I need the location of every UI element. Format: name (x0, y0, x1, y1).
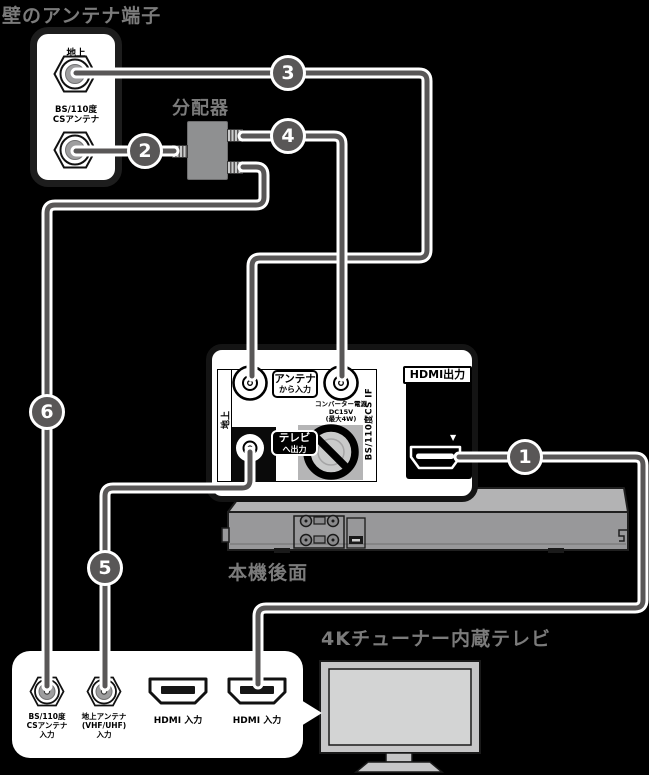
splitter-input-nub (172, 145, 188, 158)
antenna-in-terrestrial-connector-icon (230, 363, 270, 403)
coax-terminal-icon (53, 55, 97, 93)
bscs-if-label: BS/110度CS IF (361, 374, 377, 475)
tv-terrestrial-input-connector-icon (86, 676, 122, 707)
panel-pointer (301, 700, 322, 726)
tv-hdmi-input-port-icon (226, 676, 288, 706)
splitter-body (187, 121, 228, 180)
splitter-output-nub (227, 129, 243, 142)
tv-illustration (318, 658, 486, 775)
step-badge-3: 3 (270, 55, 306, 91)
device-rear-title: 本機後面 (228, 558, 308, 585)
hdmi-out-port-icon (408, 445, 464, 471)
tv-hdmi-input-port-icon (147, 676, 209, 706)
tv-out-label: テレビ へ出力 (271, 430, 318, 456)
wall-bscs-label: BS/110度CSアンテナ (37, 106, 115, 125)
tv-bscs-input-connector-icon (29, 676, 65, 707)
antenna-in-label: アンテナ から入力 (272, 370, 318, 398)
hdmi-marker-icon: ▼ (450, 434, 456, 442)
tv-hdmi2-label: HDMI 入力 (227, 713, 287, 726)
step-badge-2: 2 (127, 133, 163, 169)
recorder-terrestrial-label: 地上 (219, 405, 231, 436)
antenna-in-bscs-connector-icon (321, 363, 361, 403)
coax-terminal-icon (53, 131, 97, 169)
splitter-output-nub (227, 161, 243, 174)
tv-bscs-input-label: BS/110度CSアンテナ入力 (22, 712, 72, 739)
tv-out-connector-icon (234, 432, 266, 464)
connection-diagram: 壁のアンテナ端子 分配器 本機後面 4Kチューナー内蔵テレビ 地上 BS/110… (0, 0, 649, 775)
cable-4-splitter-to-recorder (243, 136, 342, 376)
step-badge-6: 6 (29, 394, 65, 430)
tv-hdmi1-label: HDMI 入力 (148, 713, 208, 726)
wall-terminal-title: 壁のアンテナ端子 (2, 1, 161, 28)
cable-3-terrestrial (76, 73, 427, 376)
step-badge-4: 4 (270, 118, 306, 154)
tv-terrestrial-input-label: 地上アンテナ(VHF/UHF)入力 (79, 712, 129, 739)
step-badge-1: 1 (507, 439, 543, 475)
hdmi-out-label: HDMI出力 (403, 366, 472, 384)
tv-title: 4Kチューナー内蔵テレビ (321, 624, 551, 651)
step-badge-5: 5 (87, 550, 123, 586)
splitter-title: 分配器 (172, 94, 229, 120)
